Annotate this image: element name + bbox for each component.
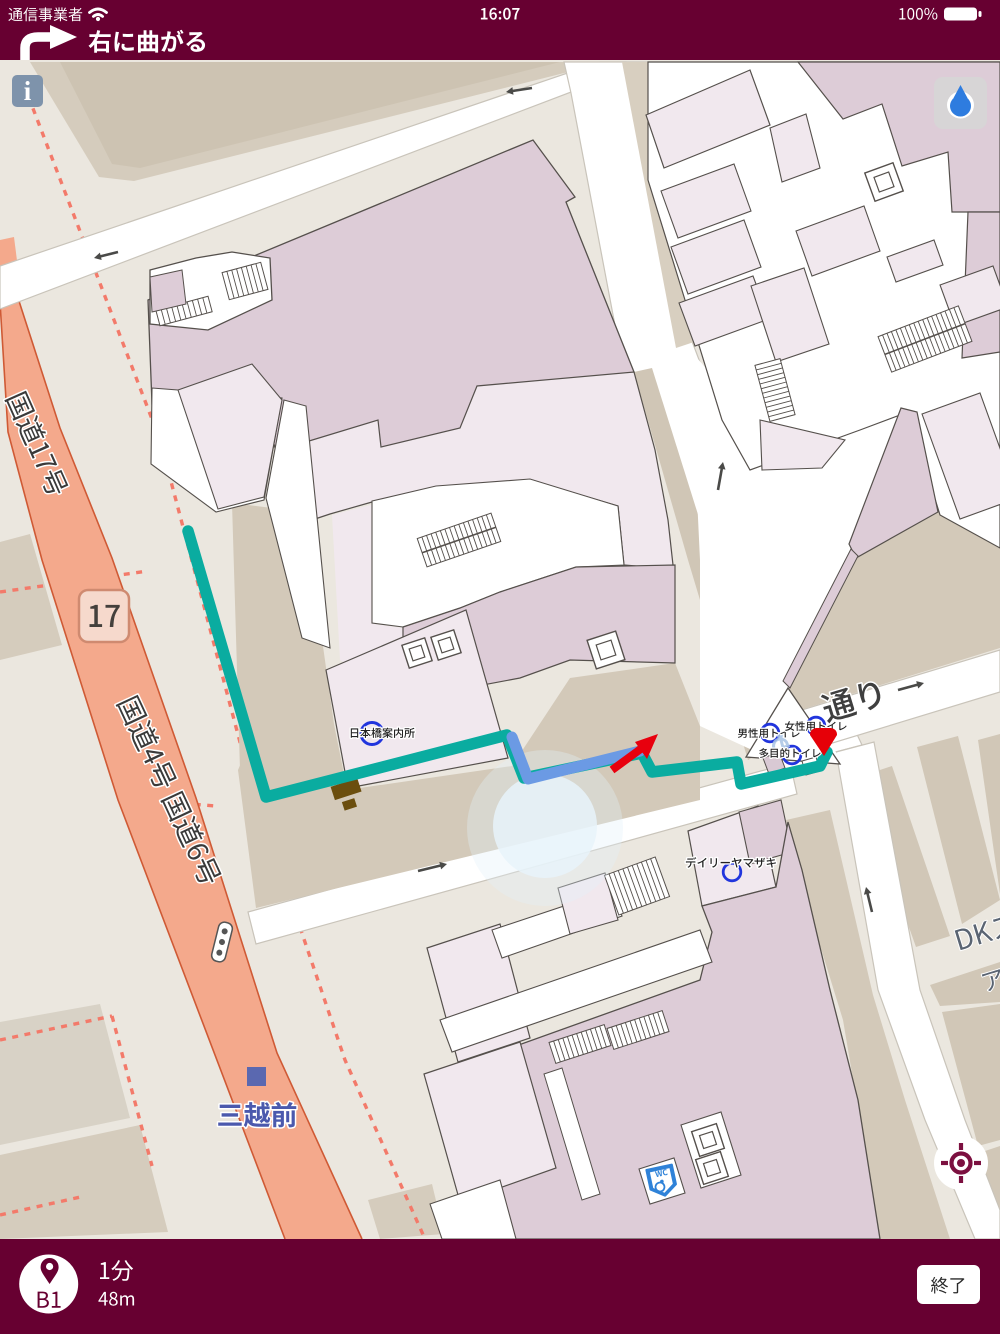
svg-text:i: i	[24, 76, 32, 106]
